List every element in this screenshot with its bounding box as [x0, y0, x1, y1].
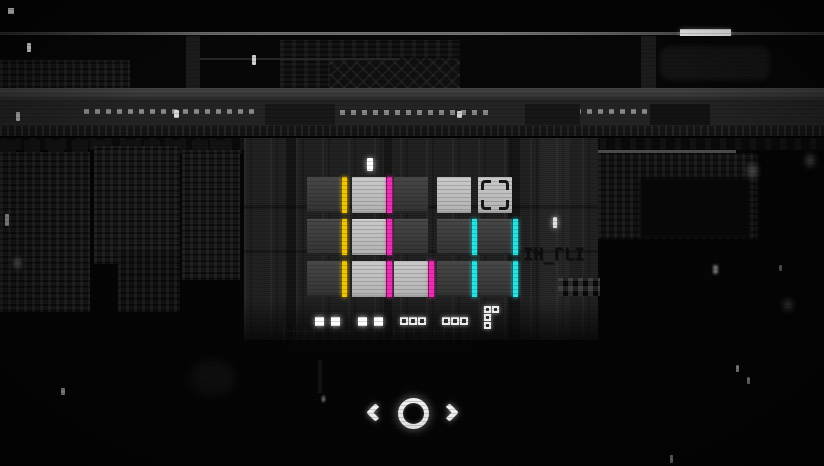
indicator-square: [315, 317, 324, 326]
menu-grid-icon[interactable]: [8, 8, 29, 29]
tile-stripe-yellow: [342, 219, 347, 255]
puzzle-tile[interactable]: [394, 261, 428, 297]
prev-level-button[interactable]: [366, 403, 384, 421]
puzzle-tile[interactable]: [478, 177, 512, 213]
glitch-line: [200, 58, 400, 60]
puzzle-tile[interactable]: [394, 219, 428, 255]
puzzle-tile[interactable]: [394, 177, 428, 213]
glitch-speck: [27, 43, 31, 52]
glitch-speck: [322, 396, 325, 402]
puzzle-tile[interactable]: [478, 261, 512, 297]
shadow-blob: [190, 360, 235, 396]
indicator-square: [484, 322, 491, 329]
glitch-speck: [670, 455, 673, 463]
glitch-speck: [748, 165, 757, 177]
indicator-square: [460, 317, 468, 325]
indicator-square: [484, 314, 491, 321]
tile-stripe-magenta: [387, 261, 392, 297]
glitch-speck: [174, 110, 179, 118]
city-building: [182, 150, 240, 280]
glitch-label: IH_ГLI: [523, 245, 584, 265]
glitch-band-upper: [0, 36, 824, 88]
train-windows: [84, 109, 254, 114]
indicator-square: [442, 317, 450, 325]
tile-stripe-cyan: [472, 219, 477, 255]
rail-pylon: [186, 36, 200, 88]
indicator-square: [484, 306, 491, 313]
indicator-square: [358, 317, 367, 326]
next-level-button[interactable]: [440, 403, 458, 421]
pole: [318, 355, 322, 393]
selection-bracket: [481, 200, 491, 210]
indicator-square: [418, 317, 426, 325]
glitch-speck: [553, 217, 557, 228]
puzzle-tile[interactable]: [437, 177, 471, 213]
glitch-speck: [16, 112, 20, 121]
checker-strip: [558, 278, 600, 296]
tile-stripe-cyan: [513, 219, 518, 255]
glitch-speck: [784, 300, 792, 310]
indicator-square: [331, 317, 340, 326]
selection-bracket: [499, 200, 509, 210]
city-shadow: [640, 178, 750, 238]
puzzle-tile[interactable]: [437, 219, 471, 255]
puzzle-tile[interactable]: [478, 219, 512, 255]
city-building: [0, 152, 90, 312]
level-select-button[interactable]: [398, 398, 429, 429]
glitch-speck: [736, 365, 739, 372]
tile-stripe-magenta: [387, 177, 392, 213]
puzzle-tile[interactable]: [352, 261, 386, 297]
train-patch: [650, 104, 710, 125]
selection-bracket: [499, 180, 509, 190]
menu-icon-cell: [8, 8, 14, 14]
glitch-truss: [330, 58, 460, 88]
puzzle-tile[interactable]: [352, 219, 386, 255]
tile-stripe-yellow: [342, 177, 347, 213]
tile-stripe-magenta: [429, 261, 434, 297]
indicator-square: [492, 306, 499, 313]
indicator-square: [451, 317, 459, 325]
puzzle-tile[interactable]: [307, 261, 341, 297]
tile-stripe-magenta: [387, 219, 392, 255]
train-patch: [265, 104, 335, 125]
glitch-speck: [779, 265, 782, 271]
indicator-square: [409, 317, 417, 325]
panel-fade: [244, 300, 598, 360]
rail-pylon: [641, 36, 656, 88]
puzzle-tile[interactable]: [437, 261, 471, 297]
glitch-speck: [252, 55, 256, 65]
glitch-speck: [367, 158, 373, 171]
tile-stripe-yellow: [342, 261, 347, 297]
indicator-square: [374, 317, 383, 326]
city-building: [118, 252, 180, 312]
glitch-speck: [61, 388, 65, 395]
puzzle-tile[interactable]: [352, 177, 386, 213]
selection-bracket: [481, 180, 491, 190]
glitch-speck: [14, 258, 21, 268]
tile-stripe-cyan: [472, 261, 477, 297]
elevated-rail: [0, 88, 824, 101]
train-band: [0, 101, 824, 126]
glitch-speck: [747, 377, 750, 384]
puzzle-tile[interactable]: [307, 219, 341, 255]
train-windows: [340, 110, 490, 115]
train-patch: [525, 104, 580, 125]
glitch-cloud: [660, 46, 770, 80]
glitch-speck: [806, 155, 814, 166]
glitch-speck: [5, 214, 9, 226]
indicator-square: [400, 317, 408, 325]
puzzle-tile[interactable]: [307, 177, 341, 213]
glitch-block: [0, 60, 130, 88]
tile-stripe-cyan: [513, 261, 518, 297]
glitch-speck: [457, 111, 462, 118]
glitch-speck: [713, 265, 718, 274]
track-band: [0, 126, 824, 136]
city-building: [94, 146, 180, 264]
game-screen: IH_ГLI: [0, 0, 824, 466]
